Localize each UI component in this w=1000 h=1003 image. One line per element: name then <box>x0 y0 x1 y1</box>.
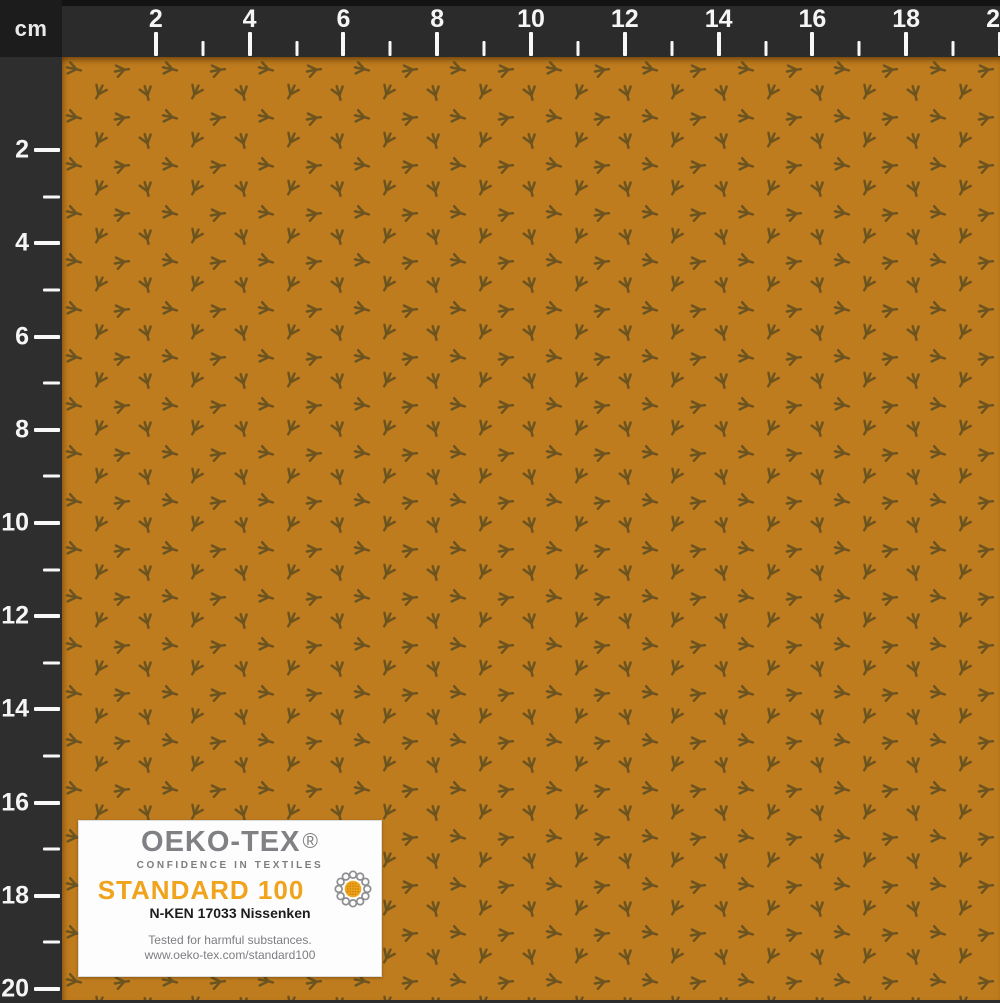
ruler-tick <box>43 848 60 851</box>
ruler-tick <box>34 148 60 152</box>
ruler-tick <box>43 382 60 385</box>
ruler-horizontal: cm 2468101214161820 <box>0 0 1000 57</box>
tested-note: Tested for harmful substances. <box>79 934 381 948</box>
ruler-tick <box>952 41 955 56</box>
ruler-tick <box>154 32 158 56</box>
oeko-tex-flower-logo <box>328 864 378 914</box>
ruler-tick <box>623 32 627 56</box>
ruler-tick <box>43 941 60 944</box>
ruler-number: 20 <box>0 977 29 1002</box>
fabric-swatch-photo: { "ruler": { "unit": "cm", "top_labels":… <box>0 0 1000 1000</box>
ruler-number: 4 <box>243 7 257 32</box>
ruler-number: 16 <box>0 790 29 815</box>
ruler-number: 18 <box>0 883 29 908</box>
ruler-number: 20 <box>986 7 1000 32</box>
ruler-tick <box>43 195 60 198</box>
ruler-tick <box>435 32 439 56</box>
ruler-tick <box>717 32 721 56</box>
ruler-unit-box: cm <box>0 0 62 57</box>
ruler-tick <box>670 41 673 56</box>
ruler-unit-label: cm <box>15 16 48 42</box>
ruler-number: 16 <box>798 7 826 32</box>
ruler-tick <box>43 475 60 478</box>
ruler-tick <box>389 41 392 56</box>
ruler-tick <box>34 241 60 245</box>
ruler-tick <box>483 41 486 56</box>
ruler-tick <box>43 755 60 758</box>
oeko-tex-url: www.oeko-tex.com/standard100 <box>79 949 381 963</box>
ruler-number: 10 <box>0 511 29 536</box>
ruler-number: 18 <box>892 7 920 32</box>
ruler-tick <box>43 661 60 664</box>
ruler-tick <box>858 41 861 56</box>
ruler-tick <box>34 894 60 898</box>
ruler-tick <box>341 32 345 56</box>
ruler-number: 6 <box>0 324 29 349</box>
ruler-number: 12 <box>611 7 639 32</box>
ruler-tick <box>529 32 533 56</box>
ruler-number: 8 <box>430 7 444 32</box>
ruler-number: 4 <box>0 231 29 256</box>
ruler-tick <box>34 428 60 432</box>
oeko-tex-certification-label: OEKO-TEX® CONFIDENCE IN TEXTILES STANDAR… <box>78 820 382 977</box>
ruler-tick <box>43 289 60 292</box>
ruler-tick <box>34 614 60 618</box>
ruler-tick <box>34 801 60 805</box>
ruler-vertical: 2468101214161820 <box>0 57 62 1000</box>
oeko-tex-brand: OEKO-TEX® <box>79 828 381 857</box>
ruler-number: 12 <box>0 604 29 629</box>
ruler-tick <box>34 707 60 711</box>
ruler-tick <box>201 41 204 56</box>
ruler-number: 10 <box>517 7 545 32</box>
ruler-number: 8 <box>0 417 29 442</box>
ruler-number: 2 <box>149 7 163 32</box>
brand-text: OEKO-TEX <box>141 826 300 858</box>
ruler-number: 14 <box>705 7 733 32</box>
ruler-tick <box>810 32 814 56</box>
ruler-tick <box>34 521 60 525</box>
ruler-tick <box>34 987 60 991</box>
ruler-tick <box>576 41 579 56</box>
ruler-tick <box>904 32 908 56</box>
ruler-tick <box>34 335 60 339</box>
ruler-number: 6 <box>336 7 350 32</box>
ruler-tick <box>43 568 60 571</box>
registered-trademark-icon: ® <box>302 830 318 853</box>
ruler-tick <box>764 41 767 56</box>
ruler-tick <box>248 32 252 56</box>
ruler-tick <box>295 41 298 56</box>
ruler-number: 2 <box>0 138 29 163</box>
ruler-number: 14 <box>0 697 29 722</box>
